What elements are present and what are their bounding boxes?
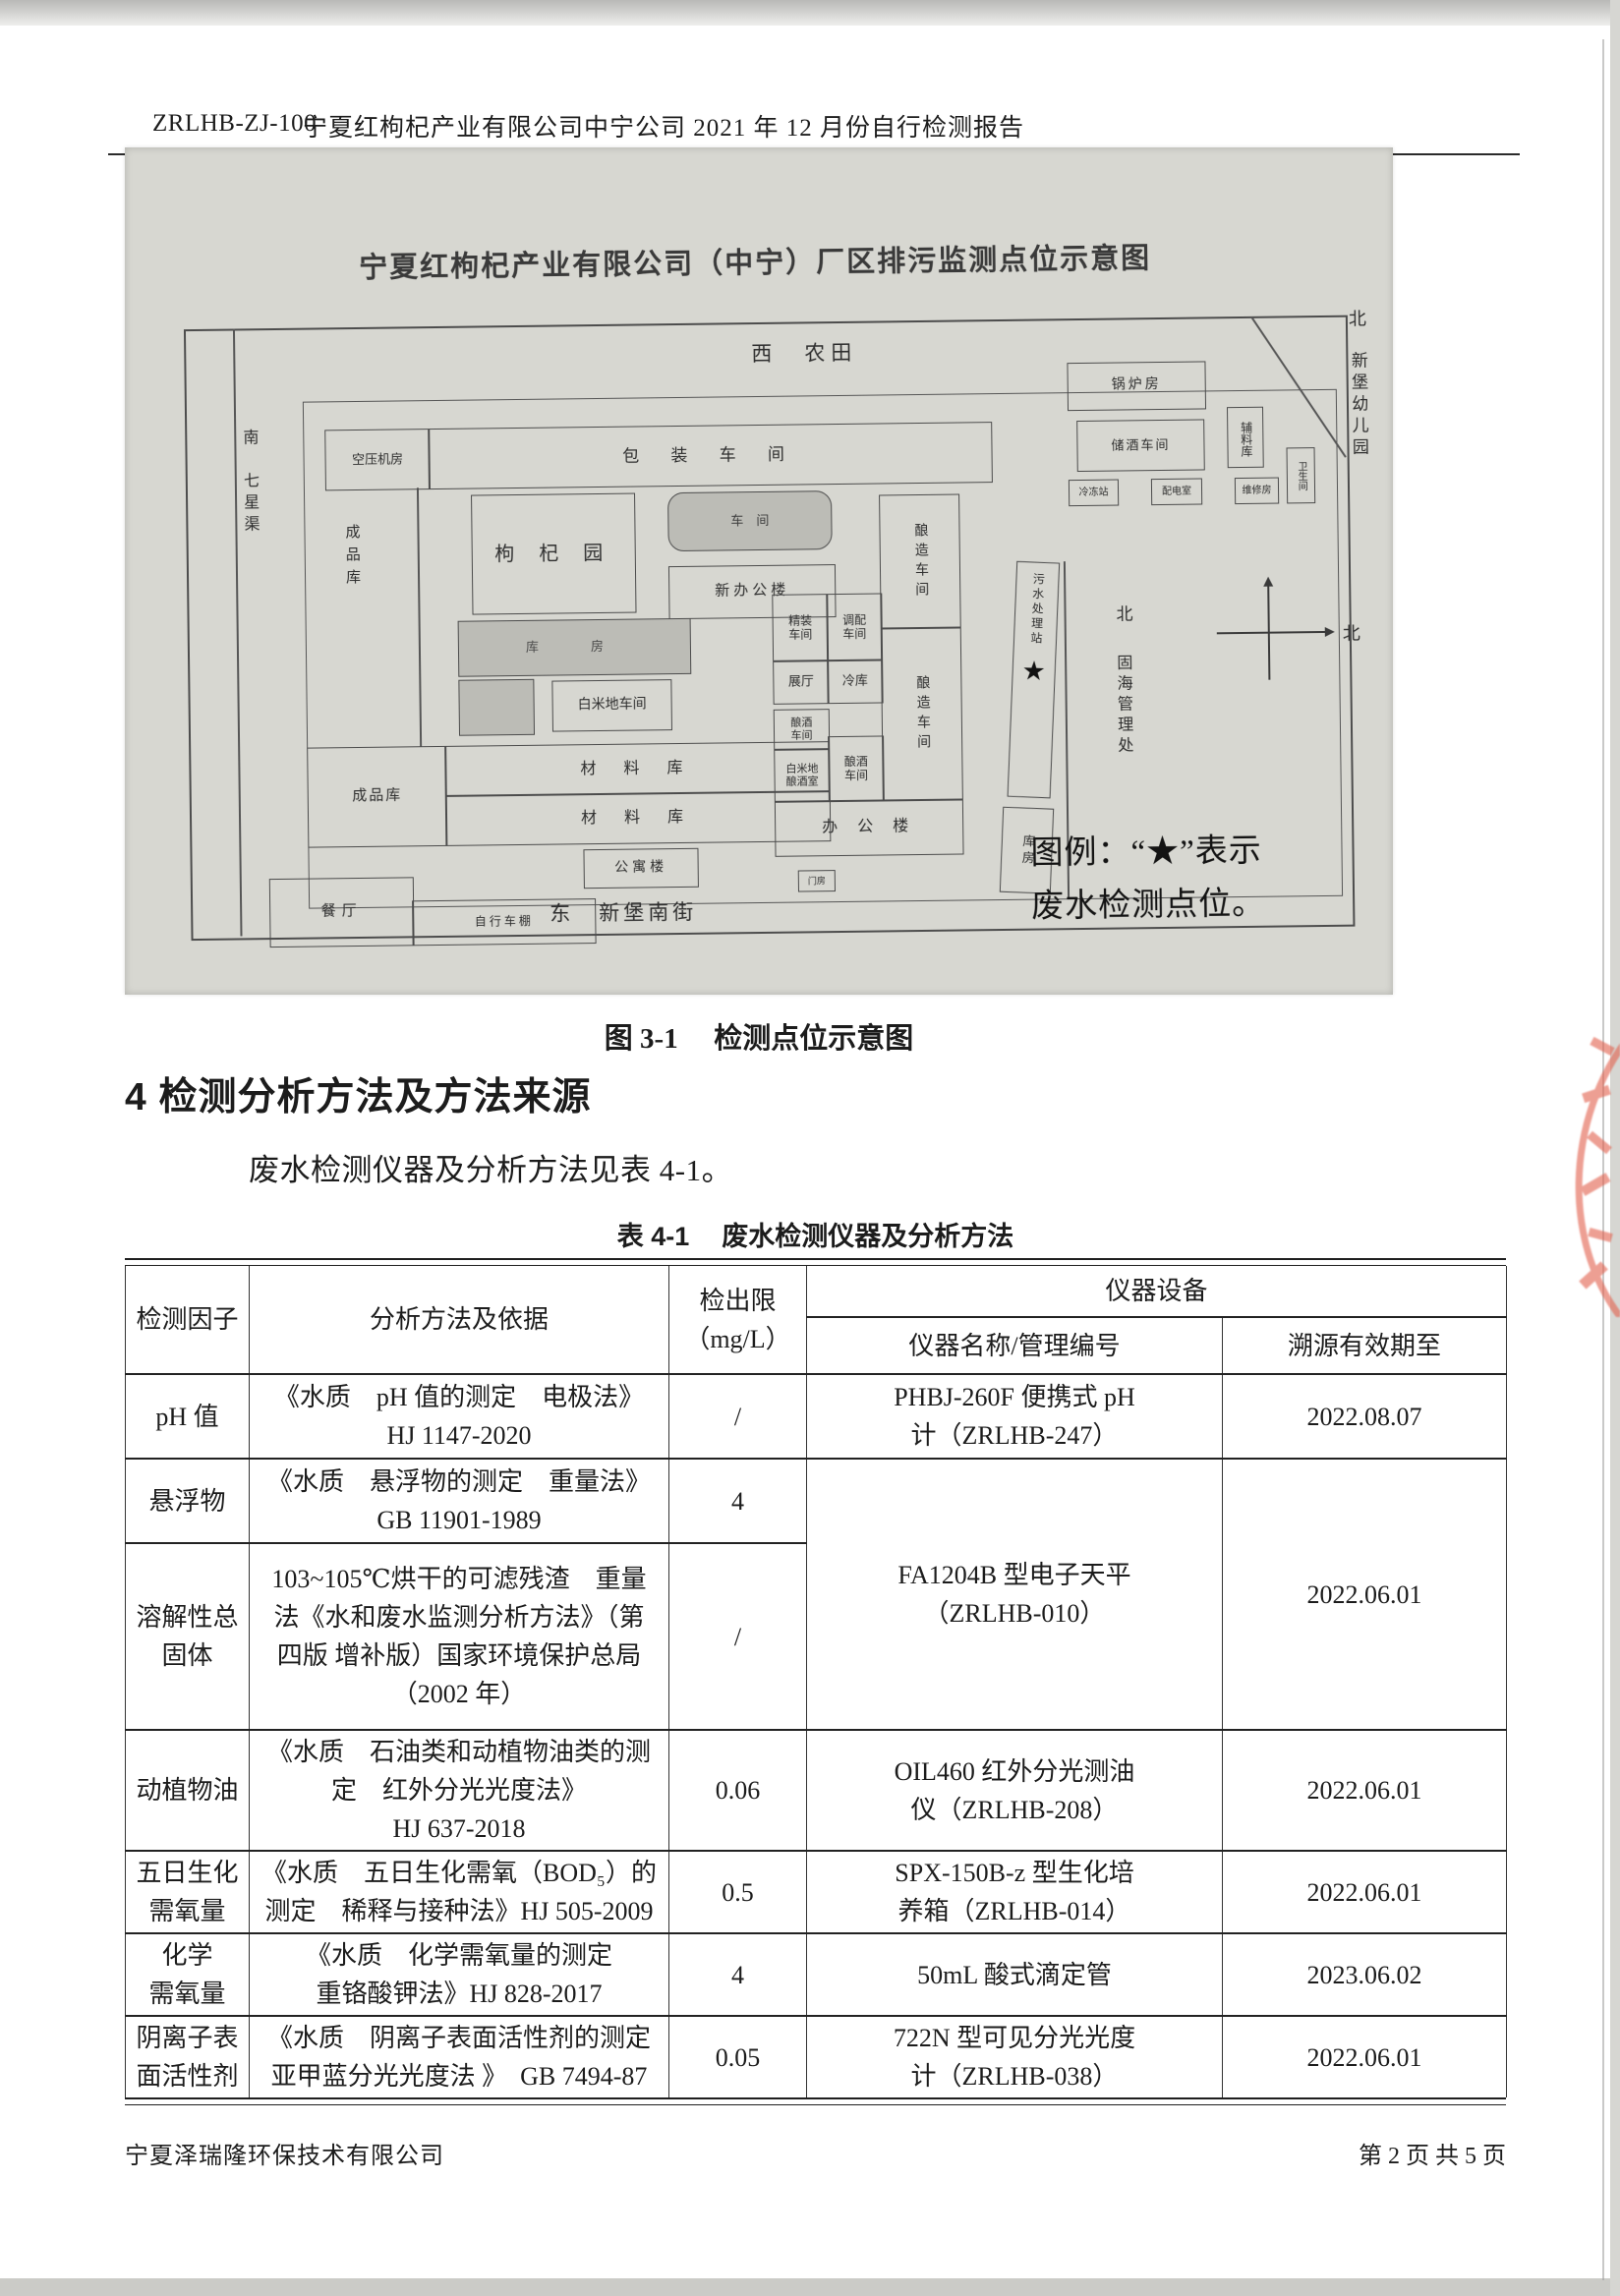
compass-up-arrow-icon [1263,577,1273,587]
table-header-row-1: 检测因子 分析方法及依据 检出限 （mg/L） 仪器设备 [126,1266,1507,1317]
figure-caption: 图 3-1 检测点位示意图 [125,1015,1393,1057]
building-fine-packing: 精装 车间 [772,594,829,662]
finished-goods-tall-label: 成品库 [342,524,361,592]
management-office-label: 固海管理处 [1113,654,1132,757]
header-instrument: 仪器名称/管理编号 [807,1317,1223,1374]
brewing-lower-label: 酿造车间 [913,674,930,753]
compass-north-label: 北 [1343,620,1360,646]
compass-right-arrow-icon [1325,627,1335,637]
building-repair-room: 维修房 [1235,478,1279,505]
building-restroom: 卫生间 [1287,447,1316,503]
scan-edge-top [0,0,1620,26]
map-legend-line2: 废水检测点位。 [1031,877,1371,935]
footer-company: 宁夏泽瑞隆环保技术有限公司 [125,2136,444,2170]
building-packaging-workshop: 包 装 车 间 [428,422,993,489]
cell-instrument: OIL460 红外分光测油 仪（ZRLHB-208） [807,1730,1223,1851]
building-small-shed [458,679,535,736]
red-stamp-fragment [1569,1012,1620,1317]
brewing-upper-label: 酿造车间 [911,522,928,601]
compass: 北 [1206,574,1374,694]
document-code: ZRLHB-ZJ-100 [152,110,317,138]
building-finished-goods: 成品库 [307,746,447,848]
building-gatehouse: 门房 [798,870,836,891]
cell-valid-merged: 2022.06.01 [1223,1459,1507,1730]
compass-horizontal-line [1217,631,1327,634]
building-workshop-rounded: 车 间 [667,490,833,551]
building-material-warehouse-2: 材 料 库 [445,790,832,846]
header-method: 分析方法及依据 [250,1266,669,1374]
cell-instrument: 50mL 酸式滴定管 [807,1933,1223,2016]
table-row: 悬浮物 《水质 悬浮物的测定 重量法》 GB 11901-1989 4 FA12… [126,1459,1507,1543]
building-power-room: 配电室 [1151,478,1202,505]
cell-limit: 4 [669,1459,807,1543]
cell-factor: 化学 需氧量 [126,1933,250,2016]
cell-valid: 2022.06.01 [1223,1730,1507,1851]
stamp-stroke [1590,1037,1614,1056]
table-caption-label: 表 4-1 [617,1222,690,1251]
building-blending: 调配 车间 [826,593,883,661]
cell-valid: 2022.06.01 [1223,2016,1507,2097]
table-row: pH 值 《水质 pH 值的测定 电极法》 HJ 1147-2020 / PHB… [126,1374,1507,1459]
building-bicycle-shed: 自行车棚 [412,898,597,946]
building-air-compressor: 空压机房 [324,429,431,490]
document-header-title: 宁夏红枸杞产业有限公司中宁公司 2021 年 12 月份自行检测报告 [303,108,1024,143]
monitoring-point-star-icon: ★ [1021,656,1046,687]
header-factor: 检测因子 [126,1266,250,1374]
table-row: 阴离子表 面活性剂 《水质 阴离子表面活性剂的测定 亚甲蓝分光光度法 》 GB … [126,2016,1507,2097]
section-intro-paragraph: 废水检测仪器及分析方法见表 4-1。 [249,1145,732,1189]
cell-method: 《水质 阴离子表面活性剂的测定 亚甲蓝分光光度法 》 GB 7494-87 [250,2016,669,2097]
cell-method: 《水质 化学需氧量的测定 重铬酸钾法》HJ 828-2017 [250,1933,669,2016]
cell-instrument: SPX-150B-z 型生化培 养箱（ZRLHB-014） [807,1851,1223,1933]
scan-edge-bottom [0,2278,1620,2296]
building-canteen: 餐厅 [269,877,415,947]
building-exhibition-hall: 展厅 [773,660,830,705]
cell-method: 103~105℃烘干的可滤残渣 重量 法《水和废水监测分析方法》（第 四版 增补… [250,1543,669,1730]
table-top-double-rule [125,1258,1506,1266]
map-legend-line1: 图例：“★”表示 [1030,823,1370,881]
section-heading: 4 检测分析方法及方法来源 [125,1066,592,1121]
cell-factor: 五日生化 需氧量 [126,1851,250,1933]
building-auxiliary-material: 辅料库 [1227,407,1264,468]
west-farmland-label: 西 农田 [751,341,857,368]
cell-limit: 0.06 [669,1730,807,1851]
cell-instrument: 722N 型可见分光光度 计（ZRLHB-038） [807,2016,1223,2097]
footer-page-info: 第 2 页 共 5 页 [1140,2136,1506,2170]
building-warehouse-band: 库 房 [458,618,692,677]
site-map-figure: 宁夏红枸杞产业有限公司（中宁）厂区排污监测点位示意图 西 农田 南 七星渠 东 … [125,147,1393,995]
figure-caption-label: 图 3-1 [605,1023,678,1055]
north-outside-label: 北 [1349,309,1366,330]
table-row: 动植物油 《水质 石油类和动植物油类的测 定 红外分光光度法》 HJ 637-2… [126,1730,1507,1851]
cell-method: 《水质 悬浮物的测定 重量法》 GB 11901-1989 [250,1459,669,1543]
cell-factor: 悬浮物 [126,1459,250,1543]
cell-method: 《水质 五日生化需氧（BOD₅）的 测定 稀释与接种法》HJ 505-2009 [250,1851,669,1933]
building-goji-garden: 枸 杞 园 [471,493,636,615]
building-apartment: 公寓楼 [583,848,698,889]
cell-method: 《水质 pH 值的测定 电极法》 HJ 1147-2020 [250,1374,669,1459]
map-legend: 图例：“★”表示 废水检测点位。 [1030,823,1370,934]
cell-valid: 2022.06.01 [1223,1851,1507,1933]
table-row: 化学 需氧量 《水质 化学需氧量的测定 重铬酸钾法》HJ 828-2017 4 … [126,1933,1507,2016]
building-material-warehouse-1: 材 料 库 [444,741,831,797]
cell-method: 《水质 石油类和动植物油类的测 定 红外分光光度法》 HJ 637-2018 [250,1730,669,1851]
cell-limit: / [669,1543,807,1730]
south-canal-label: 南 七星渠 [239,429,260,537]
sewage-station-label: 污水处理站 [1028,572,1045,646]
building-baimidi-workshop: 白米地车间 [551,679,672,731]
building-brewing-workshop-lower: 酿造车间 [881,626,963,801]
table-row: 五日生化 需氧量 《水质 五日生化需氧（BOD₅）的 测定 稀释与接种法》HJ … [126,1851,1507,1933]
cell-valid: 2023.06.02 [1223,1933,1507,2016]
header-valid: 溯源有效期至 [1223,1317,1507,1374]
map-title: 宁夏红枸杞产业有限公司（中宁）厂区排污监测点位示意图 [121,232,1389,289]
cell-instrument-merged: FA1204B 型电子天平 （ZRLHB-010） [807,1459,1223,1730]
methods-table-wrap: 检测因子 分析方法及依据 检出限 （mg/L） 仪器设备 仪器名称/管理编号 溯… [125,1258,1506,2105]
cell-factor: 阴离子表 面活性剂 [126,2016,250,2097]
cell-valid: 2022.08.07 [1223,1374,1507,1459]
kindergarten-label: 新堡幼儿园 [1347,351,1368,459]
building-freezing-station: 冷冻站 [1069,480,1119,507]
header-equipment: 仪器设备 [807,1266,1507,1317]
cell-factor: 溶解性总 固体 [126,1543,250,1730]
building-brewing-workshop-upper: 酿造车间 [879,494,961,630]
cell-factor: pH 值 [126,1374,250,1459]
figure-caption-text: 检测点位示意图 [714,1023,913,1055]
header-limit: 检出限 （mg/L） [669,1266,807,1374]
cell-limit: 0.05 [669,2016,807,2097]
building-wine-storage: 储酒车间 [1076,419,1205,472]
table-caption: 表 4-1 废水检测仪器及分析方法 [125,1215,1506,1253]
cell-limit: 4 [669,1933,807,2016]
cell-limit: 0.5 [669,1851,807,1933]
building-cold-storage: 冷库 [827,659,884,704]
table-bottom-double-rule [125,2097,1506,2105]
north-inside-label: 北 [1116,604,1132,625]
cell-factor: 动植物油 [126,1730,250,1851]
building-wine-workshop-2: 酿酒 车间 [828,735,885,802]
cell-limit: / [669,1374,807,1459]
table-caption-text: 废水检测仪器及分析方法 [722,1222,1013,1251]
site-map-content: 宁夏红枸杞产业有限公司（中宁）厂区排污监测点位示意图 西 农田 南 七星渠 东 … [120,140,1398,1003]
methods-table: 检测因子 分析方法及依据 检出限 （mg/L） 仪器设备 仪器名称/管理编号 溯… [125,1266,1507,2097]
cell-instrument: PHBJ-260F 便携式 pH 计（ZRLHB-247） [807,1374,1223,1459]
building-boiler-room: 锅炉房 [1067,361,1206,411]
